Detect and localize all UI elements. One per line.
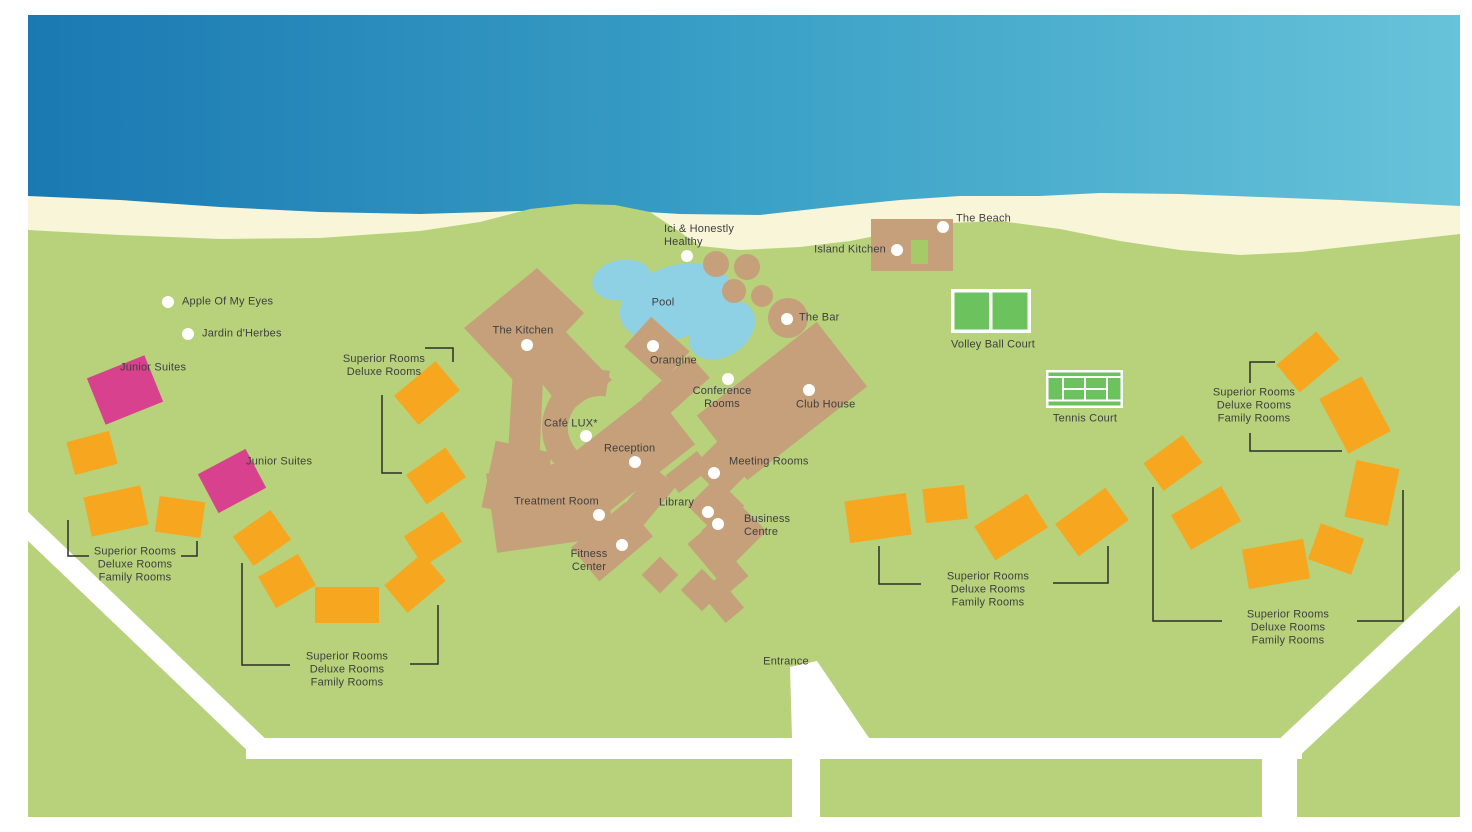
marker-business-centre [712, 518, 724, 530]
marker-conference-rooms [722, 373, 734, 385]
room-block-12 [922, 485, 967, 523]
marker-fitness-center [616, 539, 628, 551]
marker-the-beach [937, 221, 949, 233]
marker-the-bar [781, 313, 793, 325]
room-block-8 [315, 587, 379, 623]
volleyball-court-left-half [955, 293, 990, 330]
marker-reception [629, 456, 641, 468]
volleyball-court-right-half [993, 293, 1028, 330]
road-horizontal [246, 738, 1302, 759]
marker-apple-of-my-eyes [162, 296, 174, 308]
road-entrance-south [792, 758, 820, 818]
marker-club-house [803, 384, 815, 396]
marker-ici-honestly-healthy [681, 250, 693, 262]
ocean [28, 15, 1460, 215]
resort-map [0, 0, 1472, 832]
tennis-court [1046, 370, 1123, 408]
building-pool-pavilion-4 [751, 285, 773, 307]
room-block-3 [155, 496, 206, 538]
volleyball-court [951, 289, 1031, 333]
building-pool-pavilion-3 [722, 279, 746, 303]
marker-the-kitchen [521, 339, 533, 351]
marker-orangine [647, 340, 659, 352]
marker-library [702, 506, 714, 518]
marker-meeting-rooms [708, 467, 720, 479]
island-kitchen-courtyard [911, 240, 928, 264]
marker-jardin-d-herbes [182, 328, 194, 340]
building-club-house-2 [819, 366, 841, 388]
marker-island-kitchen [891, 244, 903, 256]
building-pool-pavilion-1 [703, 251, 729, 277]
road-right-south [1262, 757, 1297, 818]
room-block-11 [844, 493, 911, 543]
marker-cafe-lux [580, 430, 592, 442]
building-pool-pavilion-2 [734, 254, 760, 280]
resort-map-page: Apple Of My EyesJardin d'HerbesIci & Hon… [0, 0, 1472, 832]
marker-treatment-room [593, 509, 605, 521]
